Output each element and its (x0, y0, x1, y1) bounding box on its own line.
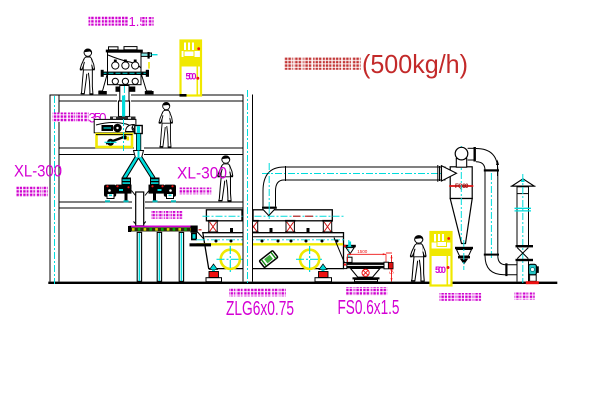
svg-text:FS0.6x1.5: FS0.6x1.5 (338, 297, 400, 319)
svg-text:500: 500 (186, 72, 197, 82)
svg-text:500: 500 (435, 265, 446, 275)
svg-text:FQ80: FQ80 (455, 184, 469, 190)
svg-text:1500: 1500 (357, 249, 367, 254)
svg-text:XL-300: XL-300 (177, 164, 227, 183)
svg-text:(500kg/h): (500kg/h) (362, 49, 468, 79)
svg-text:XL-300: XL-300 (14, 162, 62, 181)
svg-text:ZLG6x0.75: ZLG6x0.75 (226, 298, 294, 320)
